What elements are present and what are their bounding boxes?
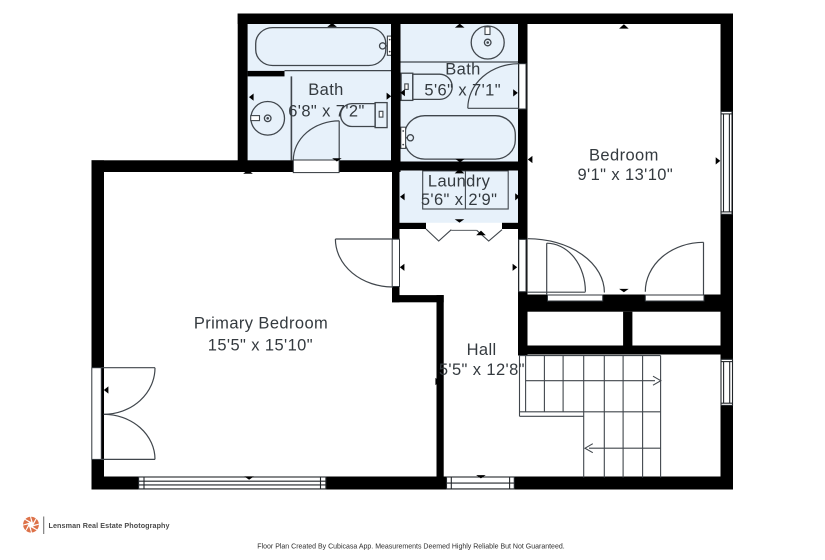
svg-text:Hall: Hall [467, 341, 497, 359]
svg-text:5'6" x 7'1": 5'6" x 7'1" [424, 82, 501, 100]
svg-text:5'6" x 2'9": 5'6" x 2'9" [421, 191, 498, 209]
svg-text:Bath: Bath [308, 81, 344, 99]
svg-text:5'5" x 12'8": 5'5" x 12'8" [439, 361, 525, 379]
svg-text:Laundry: Laundry [428, 173, 491, 191]
svg-text:9'1" x 13'10": 9'1" x 13'10" [577, 166, 673, 184]
svg-text:Floor Plan Created By Cubicasa: Floor Plan Created By Cubicasa App. Meas… [257, 544, 564, 551]
svg-text:6'8" x 7'2": 6'8" x 7'2" [288, 102, 365, 120]
svg-text:15'5" x 15'10": 15'5" x 15'10" [208, 337, 313, 355]
svg-text:Bath: Bath [445, 61, 481, 79]
svg-text:Bedroom: Bedroom [589, 146, 659, 164]
svg-text:Primary Bedroom: Primary Bedroom [194, 315, 328, 333]
svg-text:Lensman Real Estate Photograph: Lensman Real Estate Photography [49, 521, 170, 530]
